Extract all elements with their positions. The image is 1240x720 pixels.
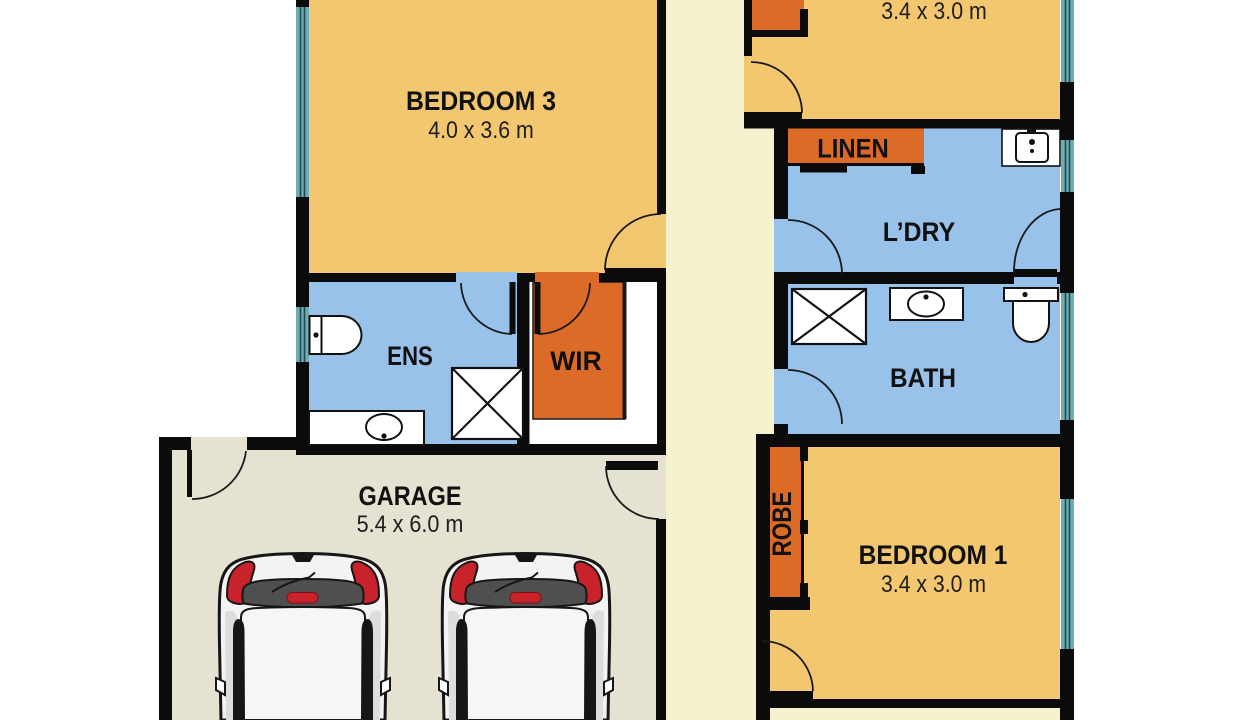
svg-text:3.4 x 3.0 m: 3.4 x 3.0 m xyxy=(881,0,987,24)
svg-text:BEDROOM 1: BEDROOM 1 xyxy=(859,541,1008,570)
svg-text:GARAGE: GARAGE xyxy=(359,482,462,512)
svg-text:BATH: BATH xyxy=(890,364,956,393)
svg-text:3.4 x 3.0 m: 3.4 x 3.0 m xyxy=(881,570,986,598)
svg-text:LINEN: LINEN xyxy=(817,134,888,163)
svg-text:L’DRY: L’DRY xyxy=(883,218,955,247)
svg-text:BEDROOM 3: BEDROOM 3 xyxy=(406,87,556,116)
svg-text:ENS: ENS xyxy=(387,342,433,371)
svg-text:ROBE: ROBE xyxy=(768,491,797,556)
svg-text:5.4 x 6.0 m: 5.4 x 6.0 m xyxy=(357,510,464,537)
svg-text:WIR: WIR xyxy=(550,346,602,376)
svg-text:4.0 x 3.6 m: 4.0 x 3.6 m xyxy=(428,116,534,143)
